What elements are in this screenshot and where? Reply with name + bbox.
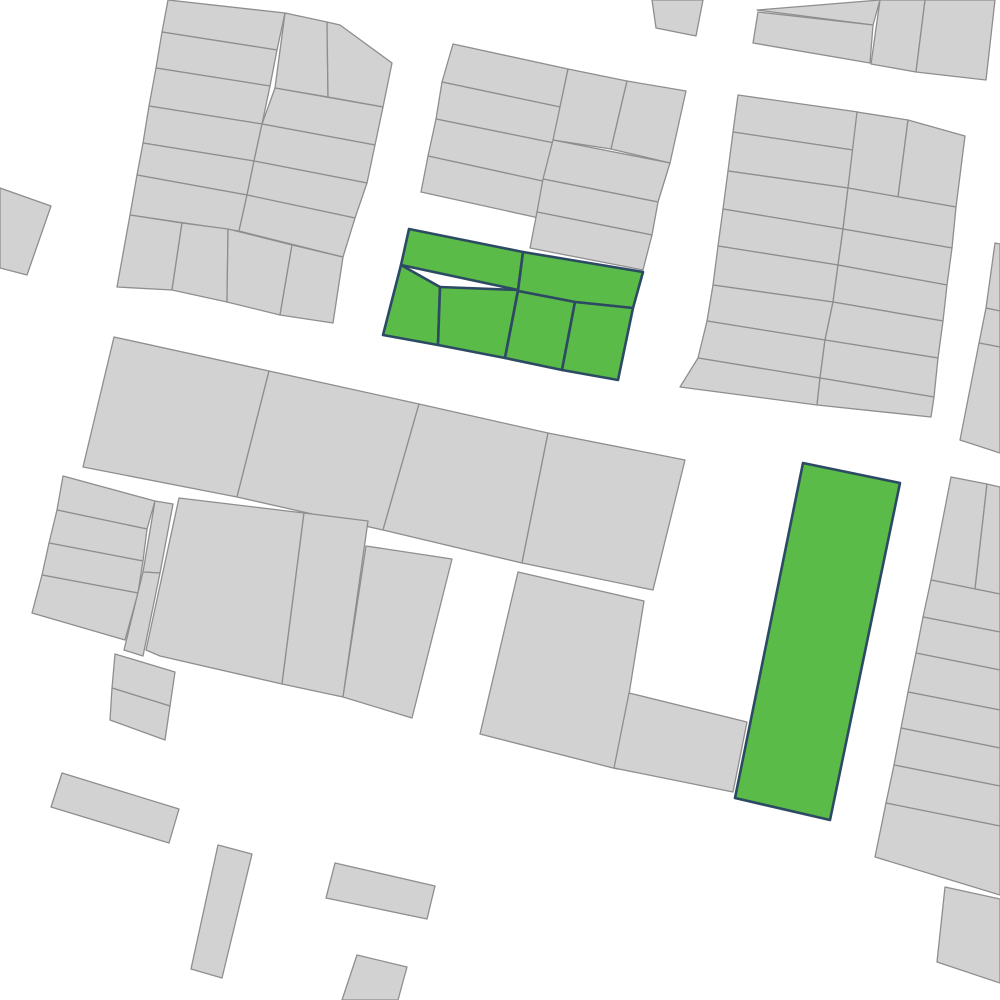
parcel-r1[interactable] xyxy=(51,773,179,843)
parcel-a7[interactable] xyxy=(117,215,182,290)
parcel-k1[interactable] xyxy=(986,243,1000,311)
parcel-w1[interactable] xyxy=(652,0,703,36)
parcel-h9[interactable] xyxy=(848,112,908,197)
parcel-a8[interactable] xyxy=(172,223,228,302)
highlighted-parcel-sel3[interactable] xyxy=(383,265,440,345)
highlighted-parcel-sel7[interactable] xyxy=(735,463,900,820)
parcel-r4[interactable] xyxy=(342,955,407,1000)
parcel-l1[interactable] xyxy=(0,188,51,275)
parcel-r2[interactable] xyxy=(191,845,252,978)
parcel-t4[interactable] xyxy=(916,0,995,80)
map-viewport[interactable] xyxy=(0,0,1000,1000)
parcel-a12[interactable] xyxy=(327,22,392,107)
parcel-k3[interactable] xyxy=(960,343,1000,453)
parcel-r3[interactable] xyxy=(326,863,435,919)
parcel-d1[interactable] xyxy=(146,498,304,684)
parcel-c4[interactable] xyxy=(522,433,685,590)
parcel-j1[interactable] xyxy=(937,887,1000,983)
parcel-a10[interactable] xyxy=(280,245,343,323)
parcel-a11[interactable] xyxy=(275,13,328,97)
parcel-map-canvas[interactable] xyxy=(0,0,1000,1000)
parcel-c1[interactable] xyxy=(83,337,269,497)
parcel-k2[interactable] xyxy=(979,308,1000,347)
highlighted-parcel-sel6[interactable] xyxy=(562,302,633,380)
parcel-f2[interactable] xyxy=(614,693,747,792)
parcel-h10[interactable] xyxy=(898,120,965,207)
